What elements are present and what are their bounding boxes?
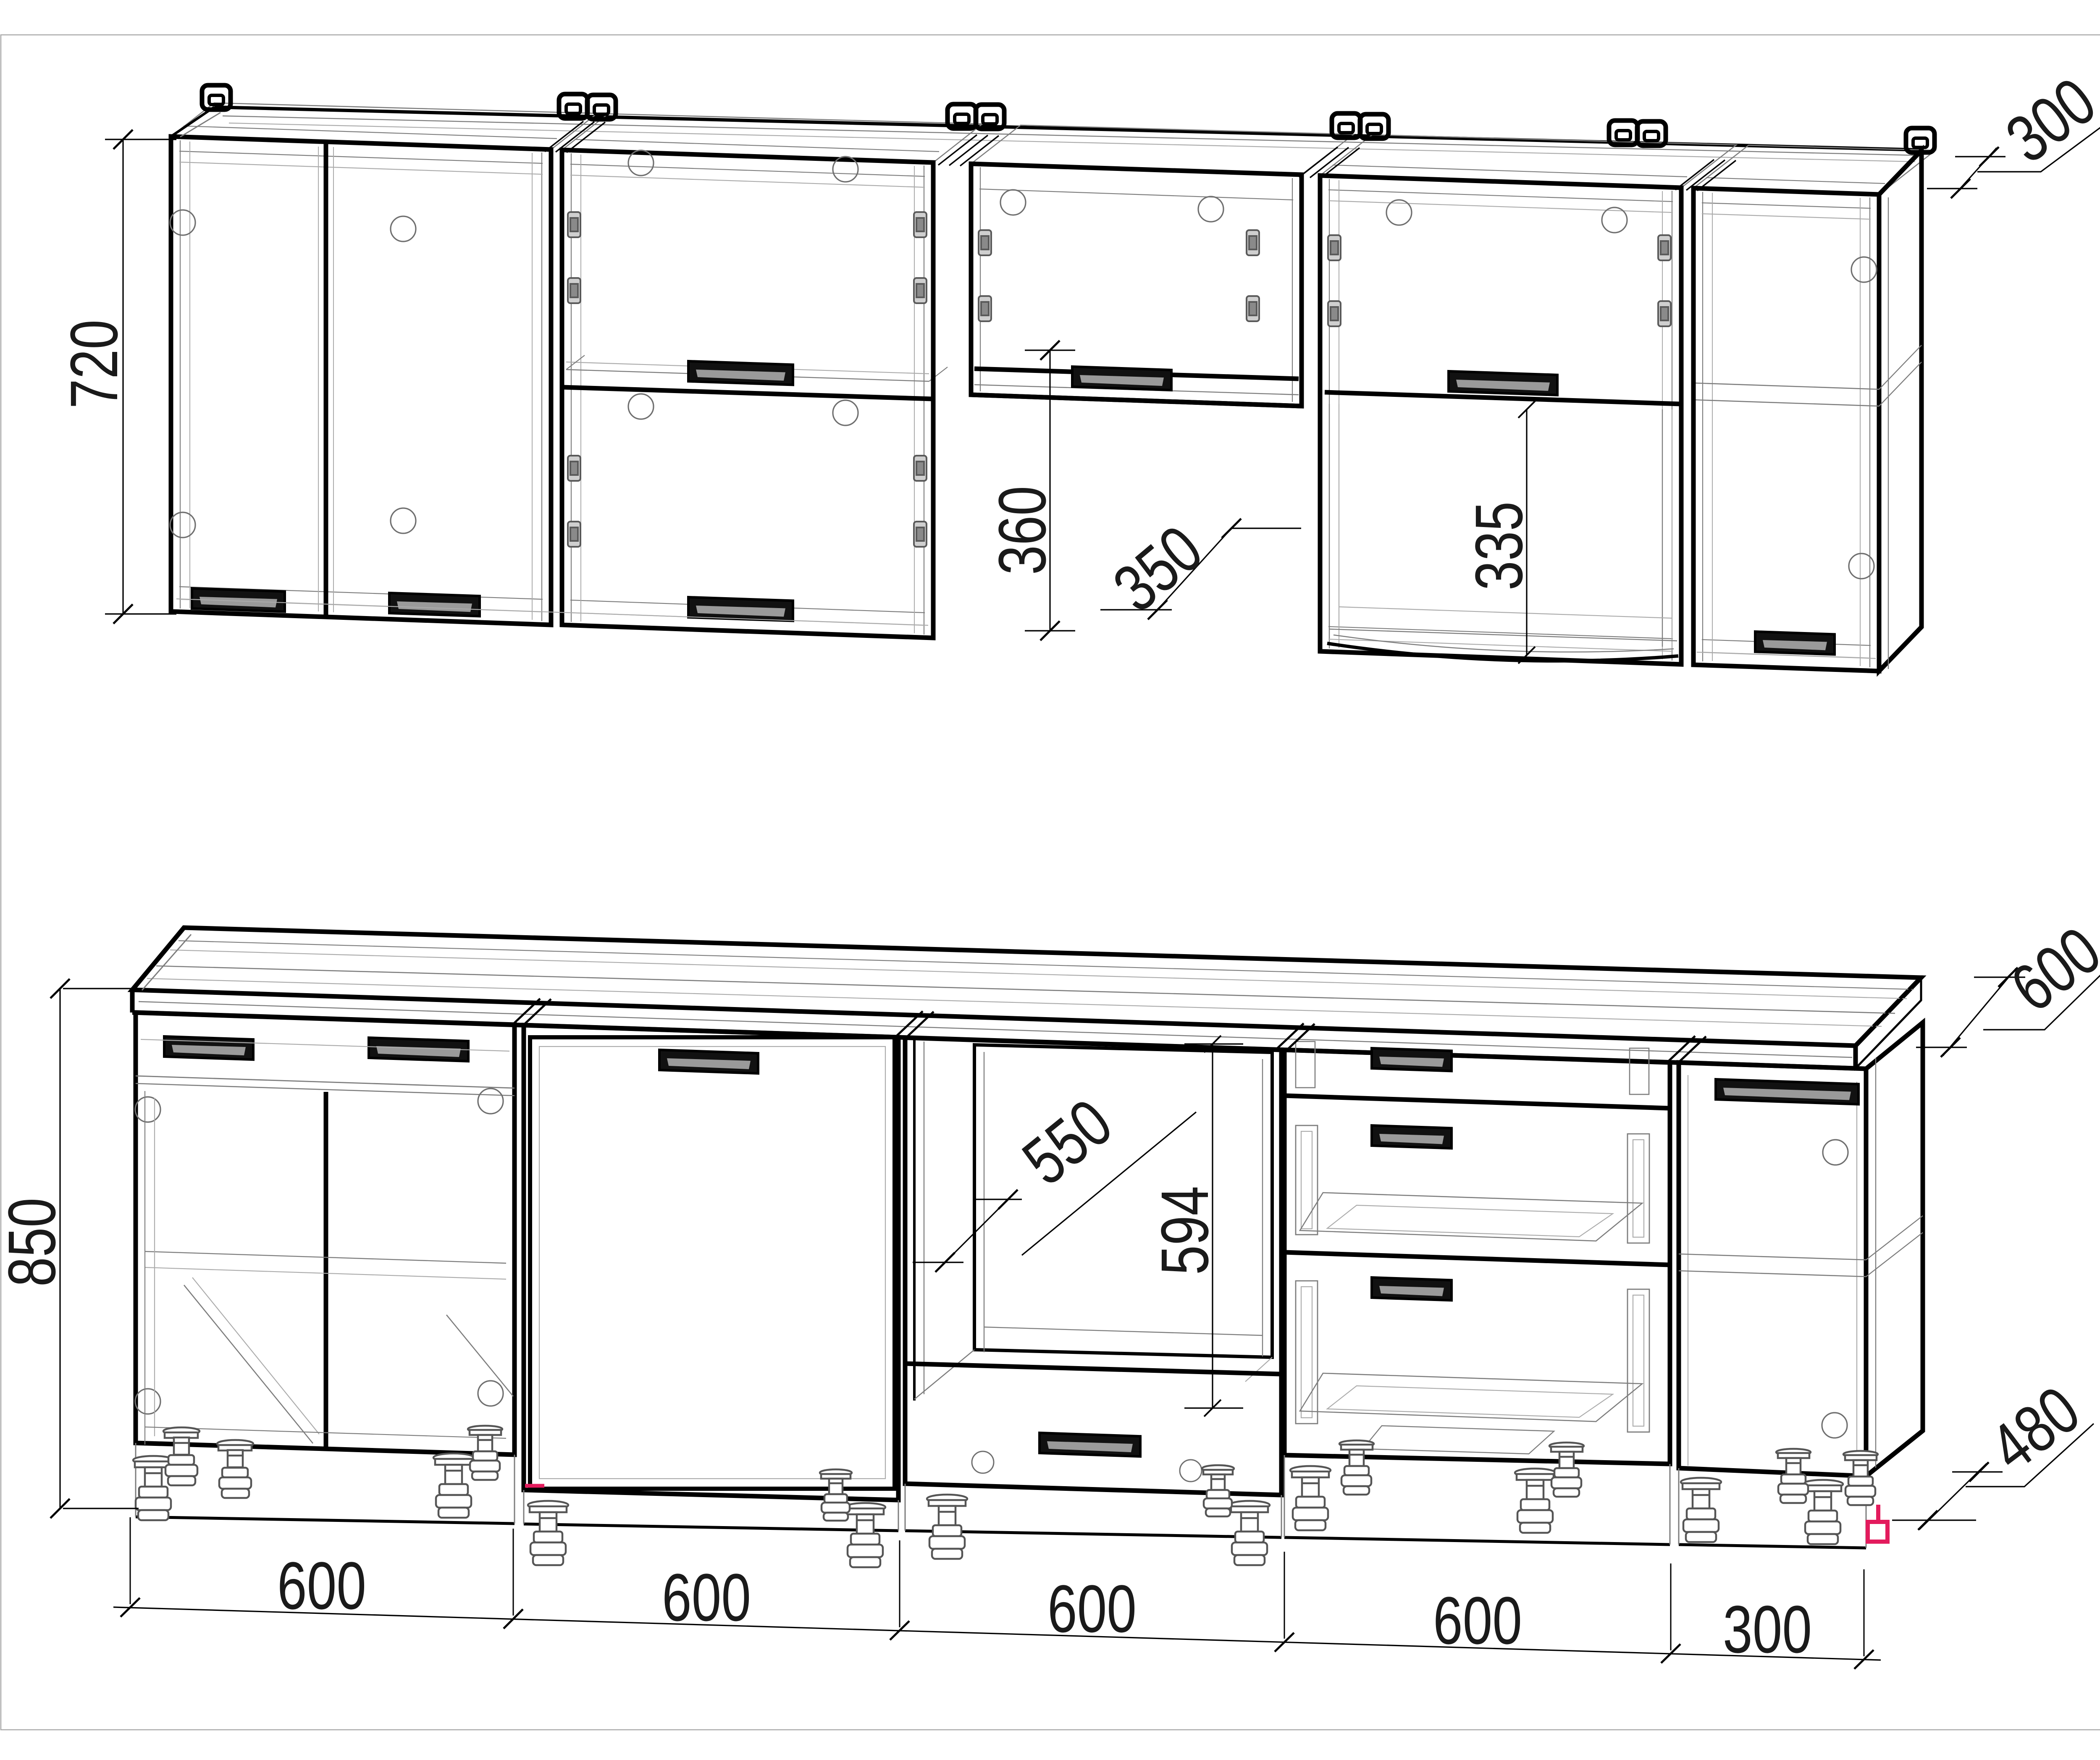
- svg-text:600: 600: [1047, 1571, 1137, 1646]
- svg-text:720: 720: [56, 320, 131, 409]
- svg-text:300: 300: [1723, 1592, 1812, 1667]
- svg-text:360: 360: [984, 486, 1060, 575]
- svg-text:600: 600: [1433, 1583, 1522, 1658]
- svg-text:600: 600: [277, 1548, 366, 1623]
- svg-text:850: 850: [0, 1198, 69, 1287]
- svg-text:335: 335: [1461, 501, 1536, 590]
- svg-text:594: 594: [1147, 1186, 1222, 1275]
- svg-text:600: 600: [662, 1560, 751, 1635]
